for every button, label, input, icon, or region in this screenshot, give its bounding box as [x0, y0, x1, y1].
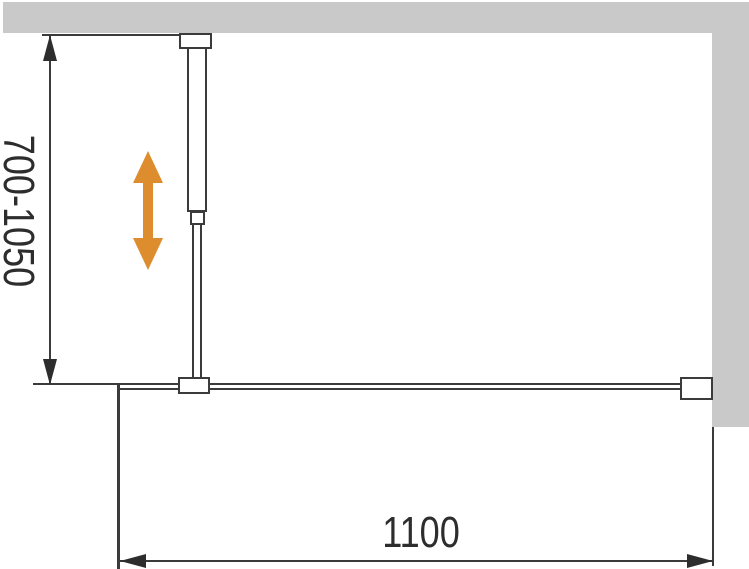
support-bar-inner-tube [192, 223, 202, 379]
dimension-arrow-left-icon [120, 554, 146, 568]
horizontal-dimension-label: 1100 [339, 511, 503, 555]
dimension-arrow-down-icon [43, 359, 57, 385]
glass-top-edge-line [33, 383, 682, 386]
vertical-dimension-label: 700-1050 [0, 104, 40, 317]
wall-face-line [42, 34, 179, 37]
adjust-arrow-up-icon [133, 151, 163, 183]
dimension-arrow-up-icon [43, 35, 57, 61]
glass-wall-bracket [680, 377, 713, 400]
bar-to-glass-connector [178, 377, 210, 394]
glass-right-end-extension-line [712, 427, 715, 566]
dimension-drawing: 700-1050 1100 [0, 0, 749, 569]
glass-left-end-extension-line [117, 383, 120, 569]
right-wall [712, 2, 749, 427]
support-bar-outer-tube [187, 47, 207, 212]
top-wall [3, 2, 749, 33]
adjust-arrow-shaft [143, 181, 153, 239]
adjust-arrow-down-icon [133, 238, 163, 270]
horizontal-dimension-line [120, 560, 713, 562]
vertical-dimension-line [49, 35, 51, 385]
dimension-arrow-right-icon [687, 554, 713, 568]
